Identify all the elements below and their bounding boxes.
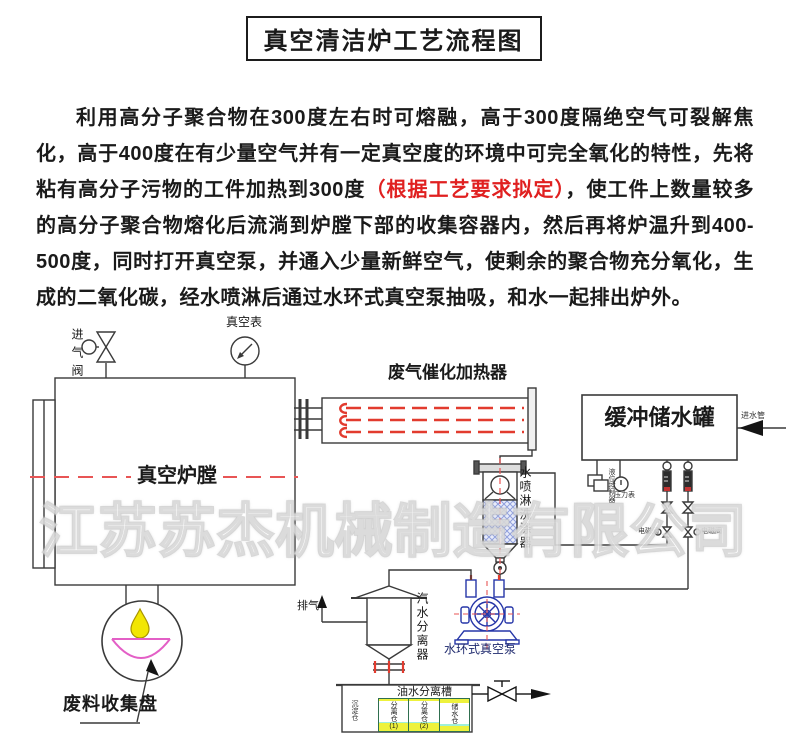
- vacuum-gauge-label: 真空表: [226, 316, 262, 329]
- compartment-1-num: (1): [379, 723, 408, 731]
- pressure-gauge-icon: [614, 477, 628, 491]
- process-flow-sheet: 真空清洁炉工艺流程图 利用高分子聚合物在300度左右时可熔融，高于300度隔绝空…: [0, 0, 787, 754]
- compartment-2-num: (2): [409, 723, 438, 731]
- vacuum-furnace-body: [33, 378, 295, 604]
- separator-label: 汽水分离器: [416, 592, 428, 662]
- compartment-2: 分离仓 (2): [409, 699, 439, 731]
- solenoid-valve-left-label: 电磁阀: [638, 528, 659, 536]
- exhaust-arrow-icon: [317, 595, 367, 622]
- pressure-gauge-label: 压力表: [614, 492, 635, 500]
- intake-valve-icon: [82, 332, 115, 378]
- compartment-3-num: [440, 726, 469, 731]
- catalytic-heater-icon: [294, 388, 536, 464]
- level-controller-icon: [588, 475, 608, 491]
- compartment-3-name: 储水仓: [451, 703, 458, 724]
- pump-discharge-pipe: [389, 570, 471, 587]
- rotameter-right-icon: [683, 462, 700, 589]
- drain-valve-icon: [472, 681, 551, 701]
- settling-compartment-label: 沉淀仓: [351, 700, 358, 721]
- waste-tray-label: 废料收集盘: [63, 695, 158, 715]
- vacuum-pump-icon: [454, 575, 520, 651]
- compartment-1-name: 分离仓: [390, 701, 397, 722]
- compartment-1: 分离仓 (1): [379, 699, 409, 731]
- buffer-tank-label: 缓冲储水罐: [582, 406, 737, 430]
- intake-valve-label: 进气阀: [71, 328, 83, 382]
- vacuum-pump-label: 水环式真空泵: [444, 643, 516, 656]
- spray-scrubber-label: 水喷淋洗涤器: [519, 466, 531, 550]
- water-inlet-label: 进水管: [741, 412, 765, 421]
- exhaust-label: 排气: [297, 600, 319, 612]
- catalytic-heater-label: 废气催化加热器: [388, 364, 507, 383]
- water-inlet-arrow-icon: [739, 420, 763, 436]
- vacuum-gauge-icon: [231, 337, 259, 378]
- furnace-chamber-label: 真空炉膛: [131, 465, 223, 487]
- oil-water-tank-label: 油水分离槽: [397, 686, 452, 698]
- separation-compartments: 分离仓 (1) 分离仓 (2) 储水仓: [378, 698, 470, 732]
- drain-arrow-icon: [531, 689, 551, 699]
- solenoid-valve-right-label: 电磁阀: [701, 528, 722, 536]
- compartment-2-name: 分离仓: [420, 701, 427, 722]
- compartment-3: 储水仓: [440, 699, 469, 731]
